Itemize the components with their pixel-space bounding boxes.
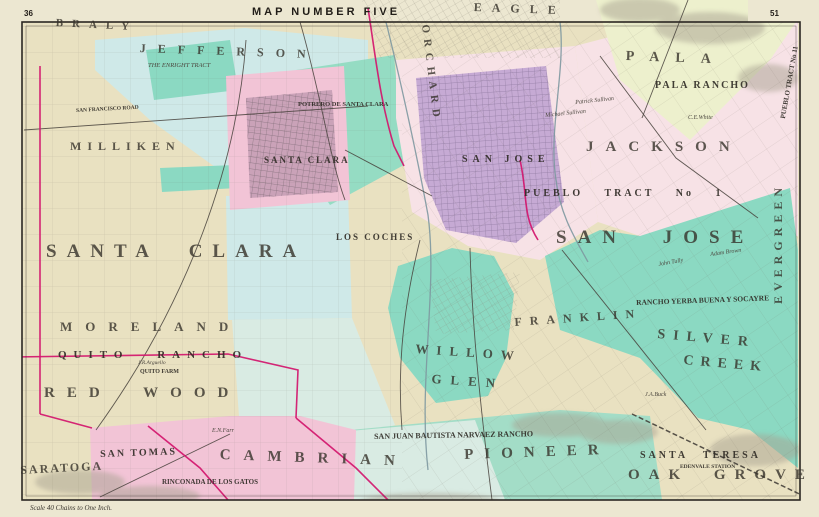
map-label-district-orchard: ORCHARD <box>419 24 442 123</box>
map-label-district-pala-rancho: PALA RANCHO <box>655 81 750 91</box>
map-label-road-san-francisco: SAN FRANCISCO ROAD <box>76 106 139 115</box>
map-label-district-santa-teresa: SANTA TERESA <box>640 451 761 461</box>
map-label-city-santa-clara: SANTA CLARA <box>264 156 350 165</box>
map-label-township-creek: CREEK <box>683 354 769 375</box>
map-label-township-cambrian: CAMBRIAN <box>219 448 408 470</box>
map-label-township-willow: WILLOW <box>415 342 522 362</box>
map-label-district-san-tomas: SAN TOMAS <box>100 447 177 460</box>
map-label-district-narvaez: SAN JUAN BAUTISTA NARVAEZ RANCHO <box>374 430 533 441</box>
map-label-township-redwood: RED WOOD <box>44 386 240 401</box>
map-label-parcel-patrick-sullivan: Patrick Sullivan <box>575 96 614 106</box>
map-label-parcel-arguello: J.R.Arguello <box>138 361 166 367</box>
map-label-parcel-john-tully: John Tully <box>658 258 684 268</box>
map-label-city-san-jose: SAN JOSE <box>462 155 550 165</box>
map-label-tract-pueblo-11: PUEBLO TRACT No 11 <box>780 46 800 120</box>
map-label-district-pueblo-tract-1: PUEBLO TRACT No 1 <box>524 189 723 199</box>
map-label-township-san-jose: SAN JOSE <box>556 228 754 247</box>
atlas-map-sheet: MAP NUMBER FIVE 36 51 Scale 40 Chains to… <box>0 0 819 517</box>
map-label-parcel-ja-buck: J.A.Buck <box>645 392 666 398</box>
map-label-township-pala: PALA <box>626 50 728 68</box>
map-label-district-edenvale-station: EDENVALE STATION <box>680 465 735 471</box>
map-label-township-santa-clara: SANTA CLARA <box>46 242 306 261</box>
map-label-district-potrero: POTRERO DE SANTA CLARA <box>298 102 388 109</box>
map-label-township-silver: SILVER <box>657 328 757 351</box>
map-label-district-los-coches: LOS COCHES <box>336 233 414 242</box>
map-label-township-eagle: EAGLE <box>474 1 566 16</box>
map-label-parcel-adam-brown: Adam Brown <box>710 248 742 258</box>
map-label-parcel-en-farr: E.N.Farr <box>212 428 234 434</box>
map-label-township-jefferson: JEFFERSON <box>140 42 318 60</box>
map-label-district-yerba-buena: RANCHO YERBA BUENA Y SOCAYRE <box>636 294 769 306</box>
map-label-township-braly: BRALY <box>55 18 138 33</box>
map-label-township-saratoga: SARATOGA <box>20 460 103 476</box>
map-label-township-pioneer: PIONEER <box>464 443 610 463</box>
map-label-township-franklin: FRANKLIN <box>514 307 643 328</box>
map-label-township-evergreen: EVERGREEN <box>772 183 784 304</box>
label-layer: BRALYJEFFERSONEAGLEPALAJACKSONMILLIKENSA… <box>0 0 819 517</box>
map-label-township-jackson: JACKSON <box>586 140 742 155</box>
map-label-township-glen: GLEN <box>431 372 505 390</box>
map-label-district-rinconada: RINCONADA DE LOS GATOS <box>162 479 258 486</box>
map-label-parcel-ce-white: C.E.White <box>688 115 713 121</box>
map-label-township-milliken: MILLIKEN <box>70 140 181 152</box>
map-label-tract-enright: THE ENRIGHT TRACT <box>148 63 210 70</box>
map-label-parcel-michael-sullivan: Michael Sullivan <box>545 109 586 119</box>
map-label-township-moreland: MORELAND <box>60 320 241 333</box>
map-label-farm-quito: QUITO FARM <box>140 369 179 375</box>
